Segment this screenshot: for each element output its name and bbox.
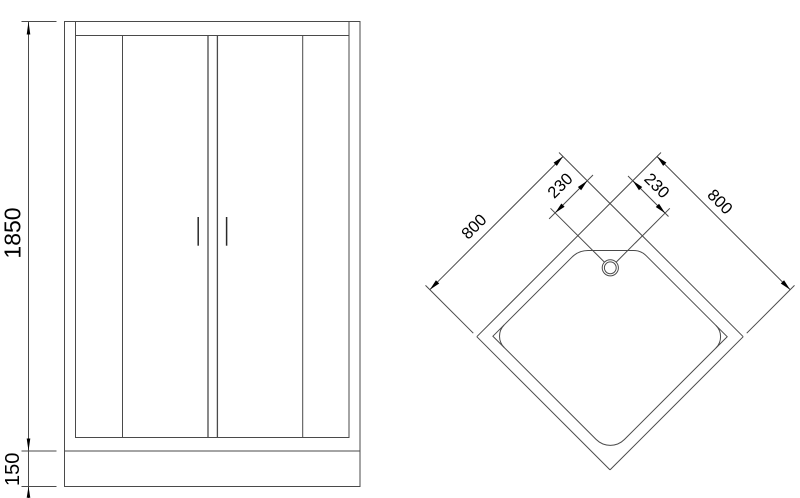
svg-text:800: 800	[704, 186, 736, 218]
svg-text:1850: 1850	[0, 207, 26, 258]
svg-text:150: 150	[2, 453, 24, 486]
svg-text:230: 230	[640, 170, 672, 202]
svg-text:800: 800	[458, 211, 490, 243]
svg-text:230: 230	[544, 170, 576, 202]
